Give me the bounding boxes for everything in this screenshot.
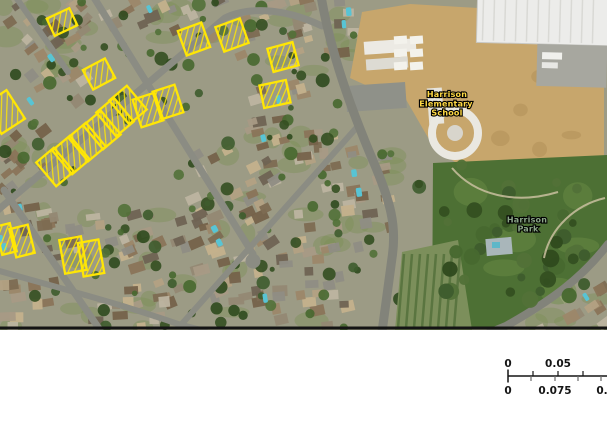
- school-label-line2: Elementary: [419, 100, 473, 109]
- figure-canvas: { "map_labels": { "school": { "lines": […: [0, 0, 607, 421]
- scale-label-bottom-0: 0: [504, 385, 511, 397]
- school-label-line1: Harrison: [427, 90, 467, 99]
- scale-label-bottom-0075: 0.075: [538, 385, 571, 397]
- scale-bar: 0 0.05 0 0.075 0.: [0, 330, 607, 421]
- park-label-line2: Park: [517, 225, 539, 234]
- scale-label-top-005: 0.05: [545, 358, 571, 370]
- scale-label-top-0: 0: [504, 358, 511, 370]
- map-image: Harrison Elementary School Harrison Park: [0, 0, 607, 330]
- scale-label-bottom-clipped: 0.: [596, 385, 607, 397]
- detection-box: [259, 80, 290, 108]
- aerial-map-figure: Harrison Elementary School Harrison Park: [0, 0, 607, 330]
- aerial-imagery: [0, 0, 607, 330]
- detection-box: [267, 42, 298, 72]
- park-label-line1: Harrison: [507, 216, 547, 225]
- detection-box: [78, 239, 105, 276]
- school-label-line3: School: [431, 109, 462, 118]
